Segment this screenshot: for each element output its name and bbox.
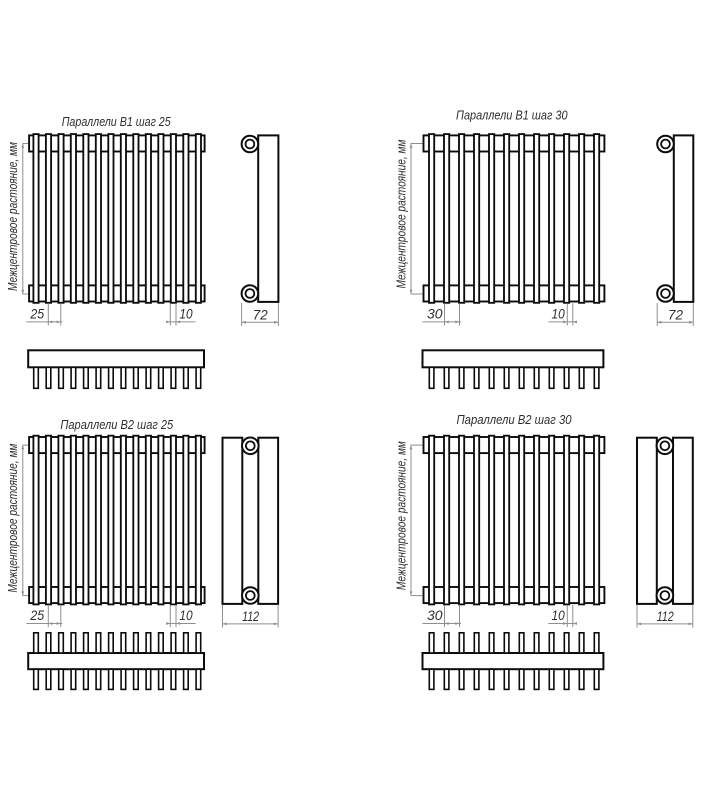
svg-text:10: 10 [179, 306, 192, 322]
svg-text:25: 25 [30, 607, 45, 623]
svg-text:10: 10 [179, 607, 192, 623]
svg-text:30: 30 [427, 607, 443, 623]
svg-text:Параллели В1 шаг 30: Параллели В1 шаг 30 [456, 107, 568, 122]
svg-text:72: 72 [668, 306, 683, 322]
svg-text:10: 10 [552, 607, 565, 623]
svg-text:Параллели В1 шаг 25: Параллели В1 шаг 25 [62, 114, 172, 129]
svg-text:25: 25 [30, 306, 45, 322]
svg-text:10: 10 [552, 306, 565, 322]
svg-text:72: 72 [253, 306, 268, 322]
svg-text:30: 30 [427, 306, 443, 322]
svg-text:Параллели В2 шаг 25: Параллели В2 шаг 25 [60, 417, 174, 432]
svg-text:Межцентровое растояние, мм: Межцентровое растояние, мм [395, 441, 409, 590]
svg-text:Межцентровое растояние, мм: Межцентровое растояние, мм [6, 443, 20, 592]
svg-text:112: 112 [242, 608, 259, 624]
svg-text:Межцентровое растояние, мм: Межцентровое растояние, мм [6, 142, 20, 291]
svg-text:Межцентровое растояние, мм: Межцентровое растояние, мм [395, 139, 409, 288]
svg-text:Параллели В2 шаг 30: Параллели В2 шаг 30 [457, 412, 573, 427]
svg-text:112: 112 [657, 608, 674, 624]
